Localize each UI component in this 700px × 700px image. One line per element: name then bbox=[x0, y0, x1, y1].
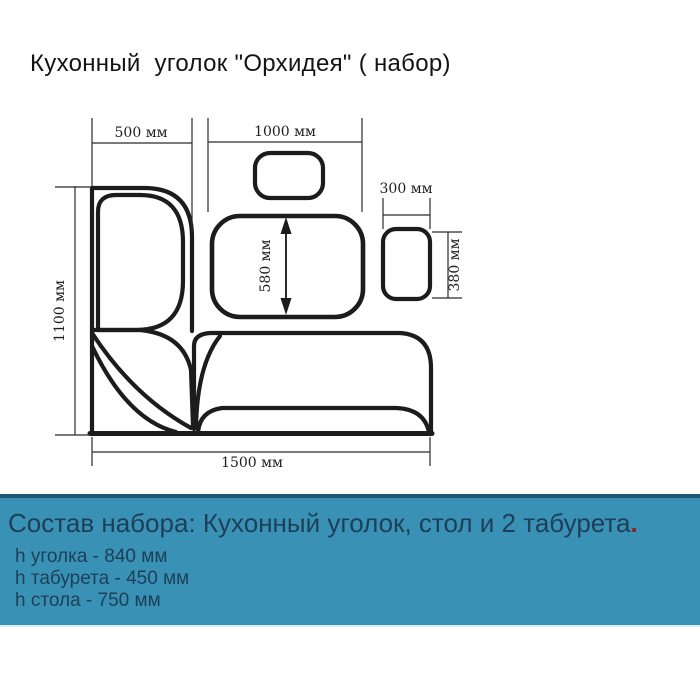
dim-label-1000: 1000 мм bbox=[254, 124, 316, 140]
spec-stool-height: h табурета - 450 мм bbox=[15, 568, 189, 590]
spec-corner-height: h уголка - 840 мм bbox=[15, 546, 189, 568]
corner-seat-arc-inner bbox=[92, 346, 176, 432]
furniture-dimension-drawing: 500 мм 1000 мм 300 мм 580 мм 380 мм 1100… bbox=[0, 0, 700, 500]
dim-label-500: 500 мм bbox=[115, 125, 168, 141]
dim-label-1500: 1500 мм bbox=[221, 455, 283, 471]
bottom-bench-back-edge bbox=[194, 333, 431, 432]
dim-label-580: 580 мм bbox=[258, 239, 274, 292]
corner-bench-outline bbox=[90, 188, 432, 434]
stool-top bbox=[255, 153, 323, 198]
product-diagram-image: Кухонный уголок "Орхидея" ( набор) bbox=[0, 0, 700, 700]
bench-left-cushion bbox=[98, 195, 183, 330]
footer-band: Состав набора: Кухонный уголок, стол и 2… bbox=[0, 494, 700, 627]
spec-table-height: h стола - 750 мм bbox=[15, 590, 189, 612]
dim-label-300: 300 мм bbox=[380, 181, 433, 197]
stool-right bbox=[383, 229, 430, 299]
height-specs: h уголка - 840 мм h табурета - 450 мм h … bbox=[15, 546, 189, 612]
heading-period: . bbox=[630, 508, 637, 538]
bottom-bench-cushion bbox=[198, 408, 429, 432]
set-contents-text: Состав набора: Кухонный уголок, стол и 2… bbox=[8, 508, 630, 538]
set-contents-heading: Состав набора: Кухонный уголок, стол и 2… bbox=[8, 508, 638, 539]
dim-label-1100: 1100 мм bbox=[52, 280, 68, 342]
dim-label-380: 380 мм bbox=[447, 238, 463, 291]
